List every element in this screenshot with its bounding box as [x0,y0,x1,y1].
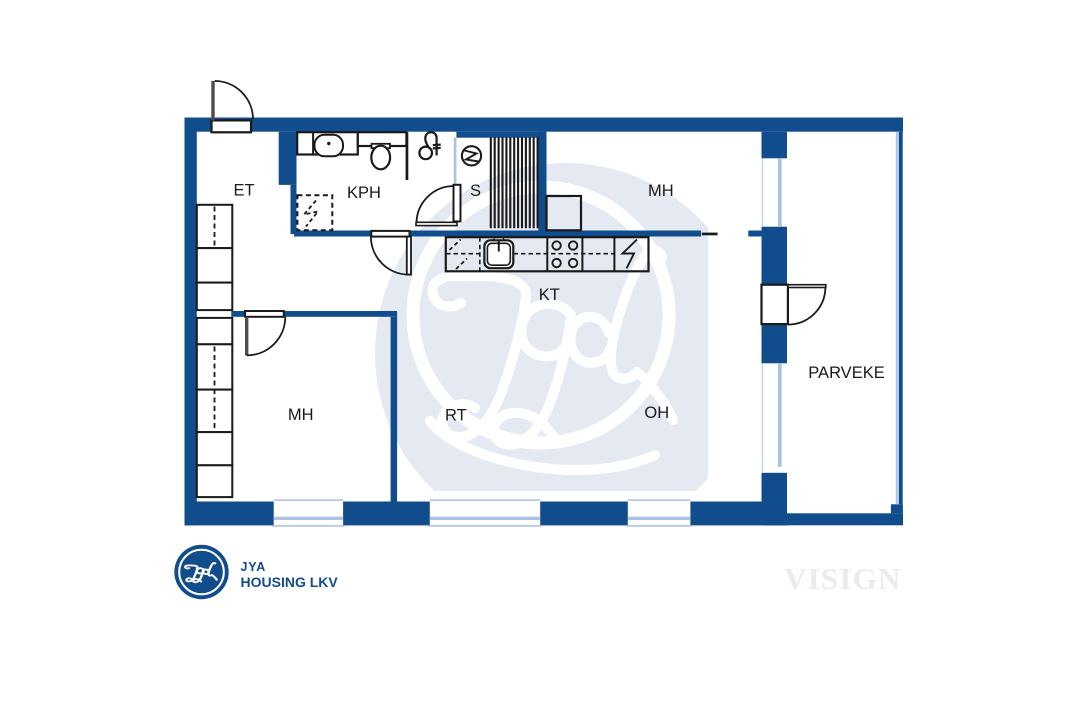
svg-text:ET: ET [233,182,254,200]
svg-text:VISIGN: VISIGN [784,561,901,596]
svg-text:JYA: JYA [241,560,267,574]
svg-text:PARVEKE: PARVEKE [808,364,884,382]
svg-text:HOUSING LKV: HOUSING LKV [241,574,339,590]
svg-text:S: S [470,182,481,200]
svg-text:RT: RT [445,407,467,425]
svg-text:MH: MH [648,182,674,200]
svg-text:MH: MH [288,406,314,424]
svg-text:KPH: KPH [347,184,381,202]
svg-text:OH: OH [644,404,669,422]
svg-text:KT: KT [539,286,560,304]
